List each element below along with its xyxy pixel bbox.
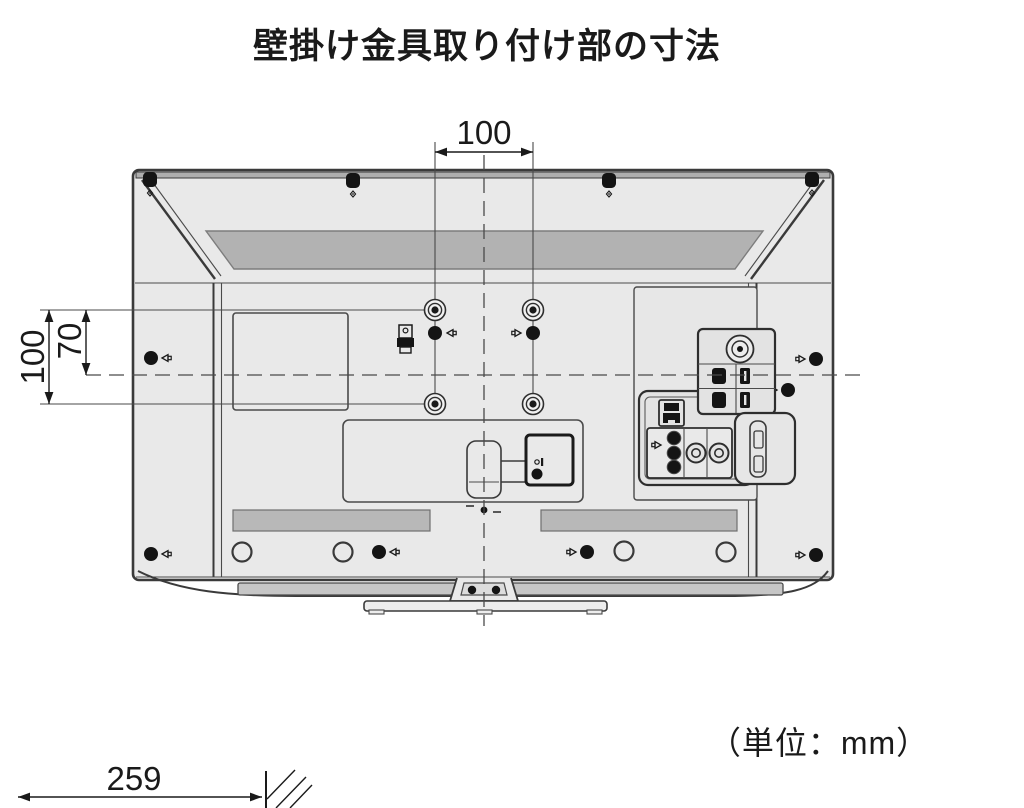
top-edge-band (136, 172, 830, 178)
hdmi-port-2 (712, 392, 726, 408)
usb-slot-1 (744, 371, 746, 381)
left-edge-screw (144, 351, 158, 365)
plate-icon-bar (541, 458, 543, 466)
dimension-stand-depth: 259 (18, 760, 262, 801)
clamp-screw (532, 469, 543, 480)
cable-recess (343, 420, 583, 513)
audio-jack-right (710, 444, 729, 463)
dim-value-center-offset: 70 (51, 323, 88, 360)
dimension-center-offset: 70 (51, 310, 90, 375)
right-edge-screw (809, 352, 823, 366)
right-inner-screw (781, 383, 795, 397)
stand-foot-right (587, 610, 602, 614)
wall-section-hatch (266, 770, 312, 808)
vesa-screw-right (526, 326, 540, 340)
dimension-top-width: 100 (435, 114, 533, 156)
bottom-screw-right (580, 545, 594, 559)
page: 壁掛け金具取り付け部の寸法 (0, 0, 1024, 808)
antenna-panel (698, 329, 775, 414)
lan-port (659, 400, 684, 426)
stand-bolt-left (468, 586, 476, 594)
dim-value-left-height: 100 (14, 329, 51, 384)
page-title: 壁掛け金具取り付け部の寸法 (253, 26, 721, 66)
bottom-corner-screw-left (144, 547, 158, 561)
vesa-screw-left (428, 326, 442, 340)
stand-foot-left (369, 610, 384, 614)
vesa-hole-top-left (425, 300, 446, 321)
stand-bolt-right (492, 586, 500, 594)
side-connector-cover (735, 413, 795, 484)
hdmi-port-1 (712, 368, 726, 384)
antenna-pin (737, 346, 743, 352)
vesa-hole-bottom-left (425, 394, 446, 415)
stand-foot-center (477, 610, 492, 614)
dim-value-top-width: 100 (456, 114, 511, 151)
audio-jack-left (687, 444, 706, 463)
tv-rear-diagram: 壁掛け金具取り付け部の寸法 (0, 0, 1024, 808)
bottom-vent-right (541, 510, 737, 531)
dimension-left-height: 100 (14, 310, 53, 404)
bottom-corner-screw-right (809, 548, 823, 562)
unit-label: （単位：mm） (709, 725, 929, 761)
dim-value-stand-depth: 259 (106, 760, 161, 797)
bottom-vent-left (233, 510, 430, 531)
usb-slot-2 (744, 395, 746, 405)
vesa-hole-bottom-right (523, 394, 544, 415)
bottom-screw-left (372, 545, 386, 559)
vesa-hole-top-right (523, 300, 544, 321)
